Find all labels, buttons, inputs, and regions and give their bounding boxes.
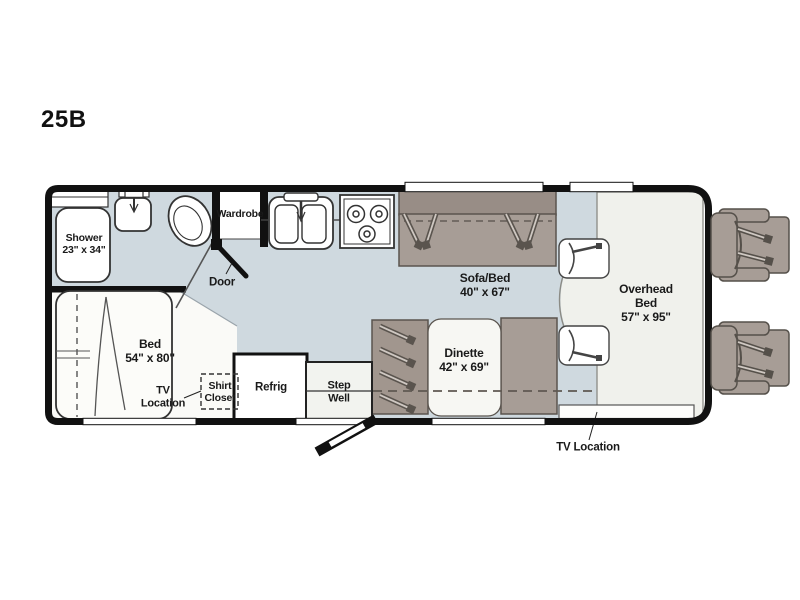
model-label: 25B — [41, 106, 87, 134]
tv-strip-icon — [559, 405, 694, 419]
bath-sink-icon — [115, 191, 151, 232]
kitchen-sink-icon — [261, 193, 341, 249]
bath-cabinet-icon — [51, 190, 108, 207]
sofa-bed-icon — [399, 191, 556, 266]
step-well-icon — [306, 362, 372, 419]
stove-icon — [340, 195, 394, 248]
shower-icon — [56, 208, 110, 282]
cab-seat-icon — [559, 326, 609, 365]
window — [570, 182, 633, 191]
bed-icon — [56, 291, 172, 419]
wardrobe-icon — [212, 188, 268, 247]
refrigerator-icon — [234, 354, 307, 420]
rv-floorplan: 25B Shower 23" x 34" Wardrobe Door Sofa/… — [0, 0, 800, 600]
cab-seat-icon — [711, 322, 789, 394]
window — [405, 182, 543, 191]
window — [83, 418, 196, 424]
floorplan-drawing — [0, 0, 800, 600]
cab-seat-icon — [711, 209, 789, 281]
window — [432, 418, 545, 424]
cab-seat-icon — [559, 239, 609, 278]
dinette-icon — [372, 318, 557, 416]
